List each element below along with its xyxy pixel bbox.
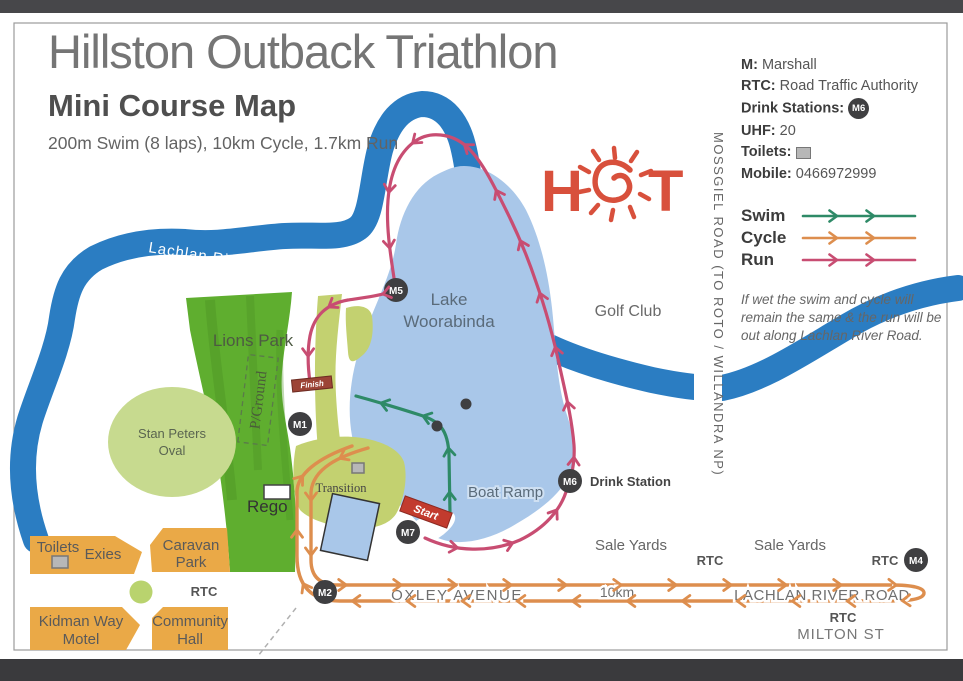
oval-shape xyxy=(108,387,236,497)
marker-m4: M4 xyxy=(904,548,928,572)
logo-letter-t: T xyxy=(648,159,683,224)
community-label-line2: Hall xyxy=(177,631,203,648)
run-arrow-icon xyxy=(799,252,921,268)
swim-label: Swim xyxy=(741,206,799,226)
sun-swirl-icon xyxy=(595,162,630,200)
rtc-label: RTC xyxy=(830,610,857,625)
svg-text:M5: M5 xyxy=(389,286,403,297)
swim-arrow-icon xyxy=(799,208,921,224)
marker-m1: M1 xyxy=(288,412,312,436)
buoy xyxy=(432,421,443,432)
drink-station-label: Drink Station xyxy=(590,474,671,489)
sale-yards-left-label: Sale Yards xyxy=(595,537,667,554)
cycle-arrow-icon xyxy=(799,230,921,246)
lions-park-label: Lions Park xyxy=(213,331,294,350)
marker-m6: M6 xyxy=(558,469,582,493)
lachlan-road-label: LACHLAN RIVER ROAD xyxy=(734,587,910,604)
rtc-key: RTC: xyxy=(741,78,776,94)
sale-yards-right-label: Sale Yards xyxy=(754,537,826,554)
community-label-line1: Community xyxy=(152,613,228,630)
transition-label: Transition xyxy=(316,481,368,495)
svg-text:M7: M7 xyxy=(401,528,415,539)
rtc-value: Road Traffic Authority xyxy=(780,78,918,94)
rtc-label: RTC xyxy=(191,584,218,599)
svg-text:M6: M6 xyxy=(563,477,577,488)
milton-st-label: MILTON ST xyxy=(797,626,885,643)
wet-weather-note: If wet the swim and cycle will remain th… xyxy=(741,291,946,346)
golf-club-label: Golf Club xyxy=(595,303,662,320)
course-map-page: Start Finish P/Ground Lachlan River Lake… xyxy=(0,0,963,681)
minor-road-dashed xyxy=(258,608,296,656)
mossgiel-road-label: MOSSGIEL ROAD (TO ROTO / WILLANDRA NP) xyxy=(711,132,726,476)
header: Hillston Outback Triathlon Mini Course M… xyxy=(48,26,558,154)
rtc-label: RTC xyxy=(697,553,724,568)
legend-cycle-row: Cycle xyxy=(741,227,946,249)
svg-text:M1: M1 xyxy=(293,420,307,431)
rtc-label: RTC xyxy=(872,553,899,568)
rego-label: Rego xyxy=(247,497,288,516)
legend-rtc: RTC: Road Traffic Authority xyxy=(741,77,946,95)
marker-m7: M7 xyxy=(396,520,420,544)
course-description: 200m Swim (8 laps), 10km Cycle, 1.7km Ru… xyxy=(48,133,558,154)
kidman-label-line1: Kidman Way xyxy=(39,613,124,630)
run-label: Run xyxy=(741,250,799,270)
caravan-label-line2: Park xyxy=(176,554,207,571)
toilets-key: Toilets: xyxy=(741,144,791,160)
legend-uhf: UHF: 20 xyxy=(741,122,946,140)
legend-marshall: M: Marshall xyxy=(741,56,946,74)
legend-toilets: Toilets: xyxy=(741,143,946,161)
toilet-icon xyxy=(796,147,811,159)
boat-ramp-label: Boat Ramp xyxy=(468,484,543,501)
exies-label: Exies xyxy=(85,546,122,563)
kidman-label-line2: Motel xyxy=(63,631,100,648)
oval-label-line1: Stan Peters xyxy=(138,426,206,441)
marshall-value: Marshall xyxy=(762,57,817,73)
mobile-key: Mobile: xyxy=(741,166,792,182)
marshall-key: M: xyxy=(741,57,758,73)
legend-mobile: Mobile: 0466972999 xyxy=(741,165,946,183)
hot-logo: H T xyxy=(541,148,683,224)
page-title: Hillston Outback Triathlon xyxy=(48,26,558,78)
sun-rays-icon xyxy=(579,148,651,220)
toilet-icon xyxy=(352,463,364,473)
toilet-icon xyxy=(52,556,68,568)
cycle-label: Cycle xyxy=(741,228,799,248)
legend-panel: M: Marshall RTC: Road Traffic Authority … xyxy=(741,56,946,345)
uhf-key: UHF: xyxy=(741,123,776,139)
toilets-label: Toilets xyxy=(37,539,80,556)
legend-run-row: Run xyxy=(741,249,946,271)
drink-station-badge: M6 xyxy=(848,98,869,119)
svg-text:M4: M4 xyxy=(909,556,923,567)
buoy xyxy=(461,399,472,410)
marker-m2: M2 xyxy=(313,580,337,604)
oval-label-line2: Oval xyxy=(159,443,186,458)
route-legend: Swim Cycle Run xyxy=(741,205,946,271)
mobile-value: 0466972999 xyxy=(796,166,877,182)
uhf-value: 20 xyxy=(780,123,796,139)
lake-label-line1: Lake xyxy=(431,290,468,309)
logo-letter-h: H xyxy=(541,159,583,224)
legend-swim-row: Swim xyxy=(741,205,946,227)
drink-key: Drink Stations: xyxy=(741,101,844,117)
page-subtitle: Mini Course Map xyxy=(48,88,558,124)
legend-drink-stations: Drink Stations: M6 xyxy=(741,98,946,119)
svg-text:M2: M2 xyxy=(318,588,332,599)
roundabout xyxy=(130,581,153,604)
lake-label-line2: Woorabinda xyxy=(403,312,495,331)
caravan-label-line1: Caravan xyxy=(163,537,220,554)
